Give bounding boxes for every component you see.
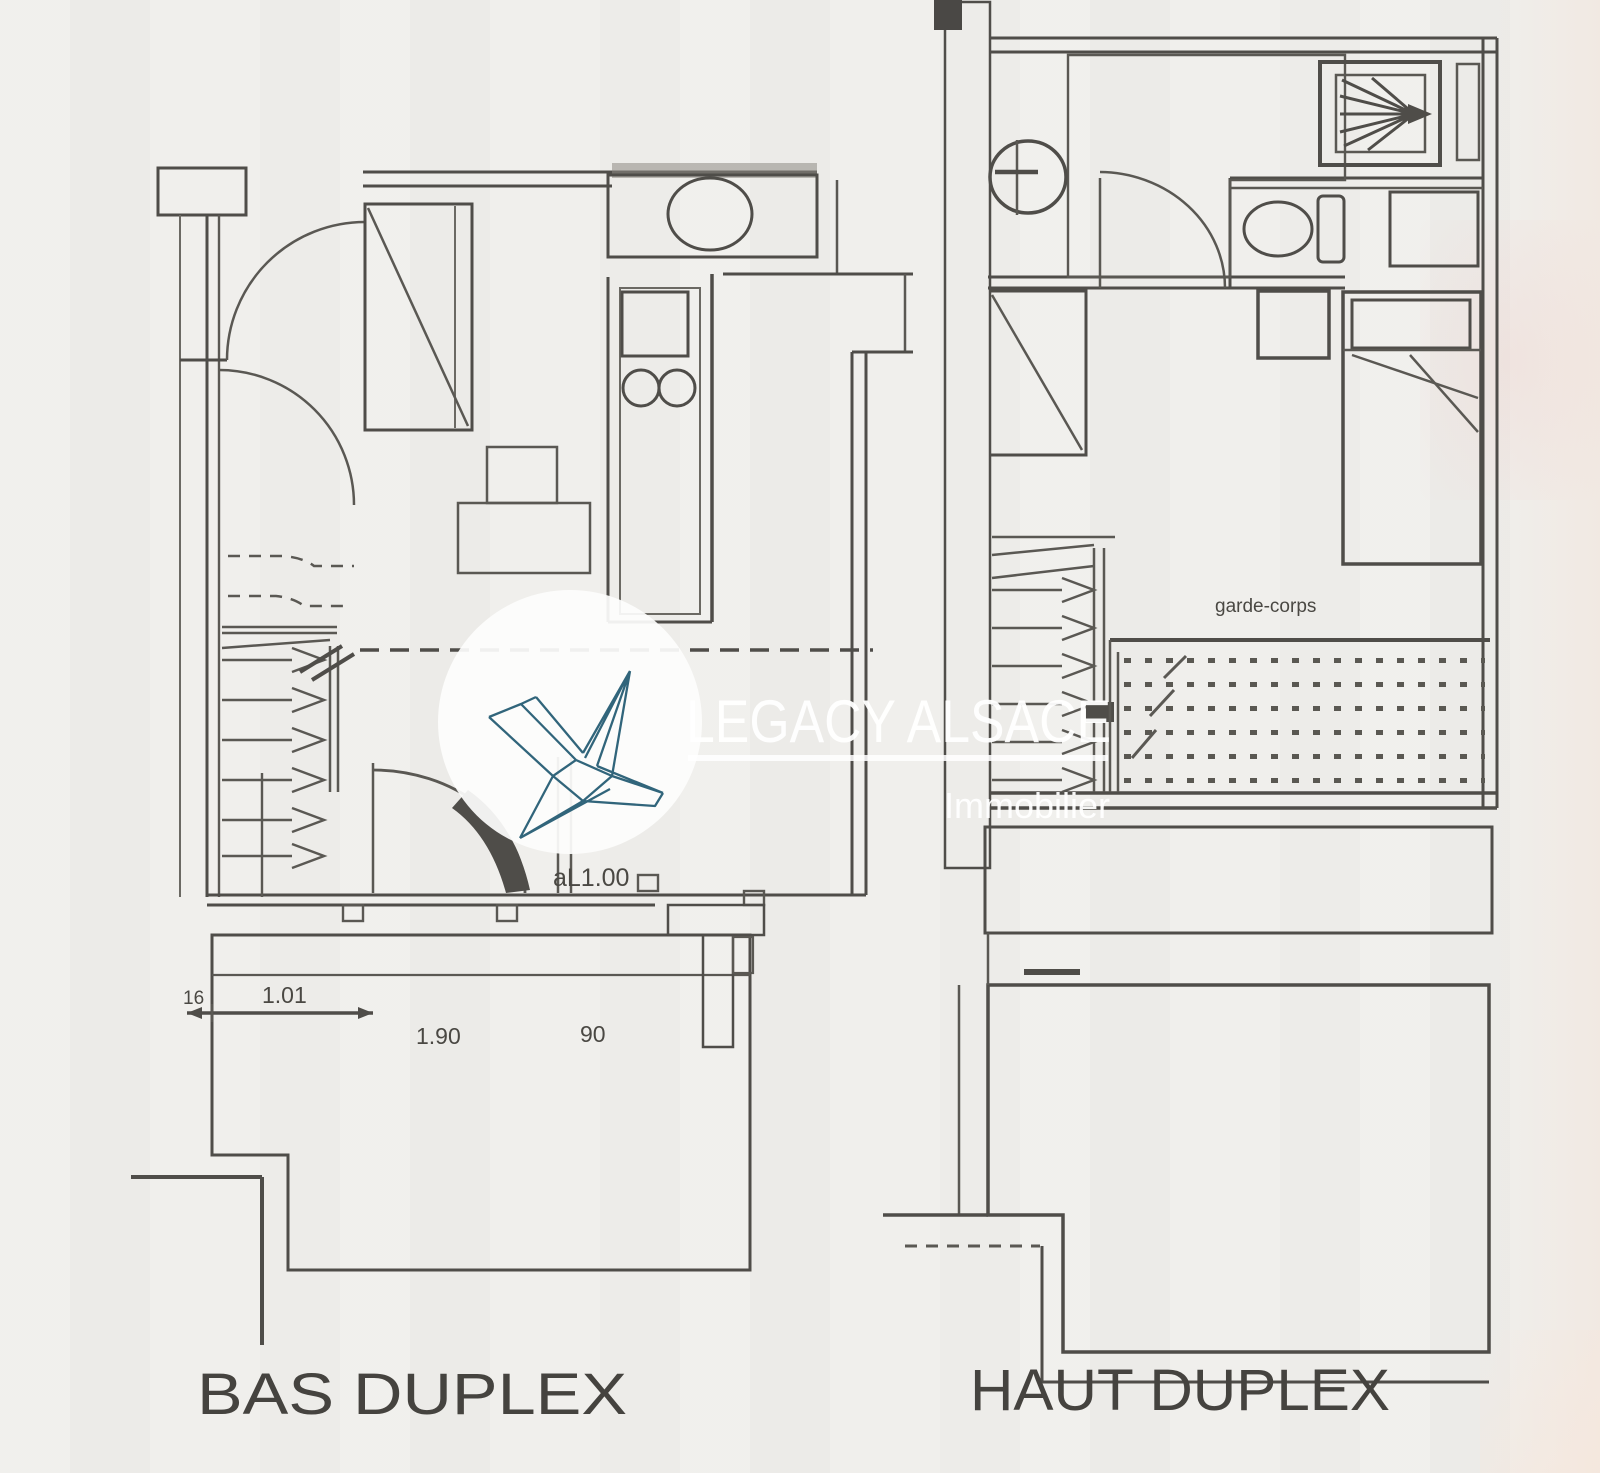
shower-symbol xyxy=(1320,62,1440,165)
haut-bedroom xyxy=(990,291,1481,564)
plan-title-haut: HAUT DUPLEX xyxy=(970,1358,1390,1423)
door-swing-arc xyxy=(219,370,354,505)
hob-burner-symbol xyxy=(659,370,695,406)
bedside-table xyxy=(1258,291,1329,358)
toilet-symbol xyxy=(1244,196,1344,262)
dimension-101: 1.01 xyxy=(262,982,307,1008)
watermark-circle xyxy=(438,590,702,854)
bas-closet xyxy=(365,204,472,430)
bas-retaining-wall xyxy=(131,1177,262,1345)
hob-burner-symbol xyxy=(623,370,659,406)
wardrobe-symbol xyxy=(990,291,1086,455)
haut-lower-level-outline xyxy=(883,933,1489,1382)
bas-dimensions: 16 1.01 1.90 90 aL1.00 xyxy=(183,864,629,1049)
floor-plan-drawing: 16 1.01 1.90 90 aL1.00 xyxy=(0,0,1600,1473)
bas-table xyxy=(458,447,590,573)
door-swing-arc xyxy=(227,222,365,360)
bathroom-tile-grid xyxy=(1068,55,1345,277)
duct-column xyxy=(1457,64,1479,160)
guardrail-label: garde-corps xyxy=(1215,596,1316,617)
haut-bathroom xyxy=(990,55,1479,288)
haut-roof-stripes xyxy=(985,827,1492,972)
dimension-90: 90 xyxy=(580,1021,606,1047)
brand-wordmark: LEGACY ALSACE xyxy=(686,688,1111,755)
dimension-190: 1.90 xyxy=(416,1023,461,1049)
kitchen-counter xyxy=(608,175,817,257)
pillow xyxy=(1352,300,1470,348)
bas-stairs xyxy=(222,556,354,897)
dimension-16: 16 xyxy=(183,988,204,1009)
bas-kitchen xyxy=(608,175,817,622)
annotation-sill-height: aL1.00 xyxy=(553,864,629,892)
kitchen-sink-symbol xyxy=(668,178,752,250)
oven-symbol xyxy=(622,292,688,356)
washbasin-symbol xyxy=(990,141,1066,213)
bed-symbol xyxy=(1343,292,1481,564)
brand-underline xyxy=(688,755,1108,761)
watermark: LEGACY ALSACE Immobilier xyxy=(438,590,1111,854)
stair-break-slash xyxy=(300,646,342,672)
haut-void-dotted-floor xyxy=(1124,654,1485,792)
floor-plan-page: 16 1.01 1.90 90 aL1.00 xyxy=(0,0,1600,1473)
bathroom-cabinet xyxy=(1390,192,1478,266)
brand-tagline: Immobilier xyxy=(944,785,1110,826)
door-swing-arc xyxy=(1100,172,1225,288)
plan-title-bas: BAS DUPLEX xyxy=(197,1362,627,1427)
